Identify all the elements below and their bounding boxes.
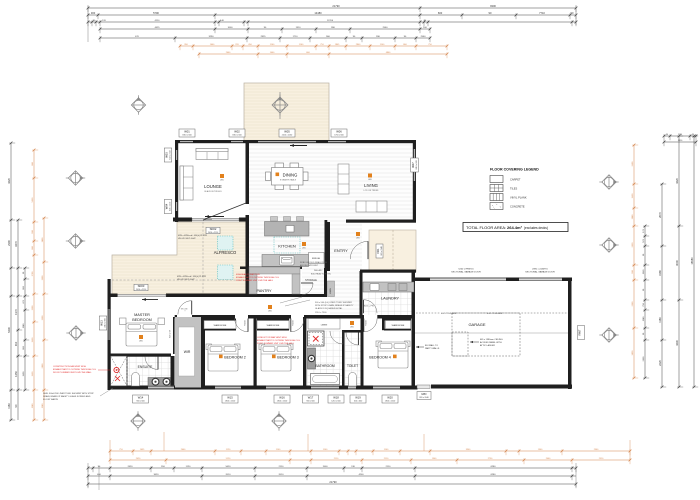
svg-text:1810 x 1500: 1810 x 1500	[277, 401, 287, 403]
svg-text:1500: 1500	[323, 466, 329, 468]
svg-text:4070 TRUSSES: 4070 TRUSSES	[441, 313, 457, 315]
svg-text:CONSTRUCTION FAN VENT MOH: CONSTRUCTION FAN VENT MOH	[53, 365, 86, 368]
svg-text:ACCESS PANEL WITH: ACCESS PANEL WITH	[480, 341, 502, 344]
svg-text:21790: 21790	[329, 480, 337, 484]
svg-text:610 x 1210: 610 x 1210	[170, 202, 172, 211]
svg-text:BULKHEAD TO HOTEL: BULKHEAD TO HOTEL	[311, 273, 331, 276]
svg-text:900 x 900 (LG) LINED TILED SHO: 900 x 900 (LG) LINED TILED SHOWER	[315, 302, 352, 304]
svg-text:WARDROBE: WARDROBE	[267, 324, 280, 327]
svg-text:W01: W01	[184, 130, 190, 134]
svg-text:B/U WALL TO: B/U WALL TO	[425, 344, 438, 347]
svg-text:LED: LED	[350, 327, 354, 329]
svg-text:2110: 2110	[279, 466, 284, 468]
svg-text:2410 x 900: 2410 x 900	[105, 318, 107, 327]
svg-text:CONCRETE: CONCRETE	[510, 205, 525, 209]
svg-text:1000: 1000	[228, 27, 234, 29]
svg-text:900 x 600: 900 x 600	[136, 401, 144, 403]
svg-text:1450: 1450	[14, 371, 18, 377]
svg-text:VINYL PLANK: VINYL PLANK	[510, 196, 527, 200]
svg-text:7/8x68: 7/8x68	[245, 320, 247, 326]
svg-text:FLOOR WASTE: FLOOR WASTE	[43, 398, 59, 401]
svg-text:1710: 1710	[293, 36, 299, 38]
svg-text:665 x 1380mm CEILING: 665 x 1380mm CEILING	[480, 339, 503, 341]
svg-text:2010: 2010	[226, 474, 232, 476]
svg-text:W02: W02	[234, 130, 240, 134]
svg-text:4200: 4200	[359, 474, 365, 476]
svg-text:ENSUITE: ENSUITE	[138, 365, 153, 369]
svg-text:DRAIN, BRASS IP SAFETY GLASS S: DRAIN, BRASS IP SAFETY GLASS SCREED AND	[43, 395, 91, 398]
svg-text:4PB x 4PB/cob / 450(h) PLNTR: 4PB x 4PB/cob / 450(h) PLNTR	[177, 276, 207, 278]
svg-text:1370: 1370	[14, 309, 18, 315]
svg-text:CONDUCTOR FAN VENT MOH: CONDUCTOR FAN VENT MOH	[257, 336, 287, 339]
svg-text:920 x 2340: 920 x 2340	[381, 246, 383, 255]
svg-text:STORAGE: STORAGE	[305, 279, 317, 282]
svg-text:5200 x HRM 16: 5200 x HRM 16	[458, 269, 474, 271]
svg-text:BEDROOM: BEDROOM	[132, 318, 152, 322]
svg-text:600: 600	[438, 11, 443, 15]
svg-text:W20: W20	[387, 396, 393, 400]
svg-text:8 SEATER TABLE: 8 SEATER TABLE	[280, 179, 297, 182]
svg-text:2560: 2560	[383, 27, 389, 29]
svg-text:SECTIONAL GARAGE DOOR: SECTIONAL GARAGE DOOR	[451, 271, 481, 274]
svg-text:610 x 2110: 610 x 2110	[170, 150, 172, 159]
svg-text:1810 x 600: 1810 x 600	[232, 135, 241, 137]
svg-text:MASTER: MASTER	[134, 313, 150, 317]
svg-text:POINT SUMMER UNIT LIVE THE HAL: POINT SUMMER UNIT LIVE THE HALL	[236, 279, 274, 282]
svg-text:2220: 2220	[658, 360, 662, 366]
svg-text:ROBO L/MOULD SMALL ROBE: ROBO L/MOULD SMALL ROBE	[300, 261, 328, 264]
svg-text:5620: 5620	[226, 466, 232, 468]
svg-text:W16: W16	[279, 396, 285, 400]
svg-text:2410 x 2110: 2410 x 2110	[136, 289, 146, 291]
svg-text:2390: 2390	[7, 240, 11, 246]
svg-text:610 x 600: 610 x 600	[354, 401, 362, 403]
svg-text:BEDROOM 3: BEDROOM 3	[277, 356, 299, 360]
svg-text:LED: LED	[139, 341, 143, 343]
svg-text:TILES: TILES	[510, 187, 517, 191]
svg-text:W17: W17	[308, 396, 314, 400]
svg-text:1810 x 600: 1810 x 600	[182, 135, 191, 137]
svg-text:W04: W04	[165, 203, 169, 209]
svg-text:LED: LED	[268, 311, 272, 313]
svg-text:7/8 x 68: 7/8 x 68	[181, 309, 188, 311]
svg-text:2410 x 600: 2410 x 600	[416, 160, 418, 169]
svg-text:W14: W14	[138, 396, 144, 400]
svg-text:WITH STRIP DRAIN, BRASS IP SAF: WITH STRIP DRAIN, BRASS IP SAFETY	[315, 304, 354, 307]
svg-text:2110: 2110	[386, 466, 391, 468]
svg-text:LCD ON TRESS: LCD ON TRESS	[364, 190, 379, 192]
svg-text:VELUX SKYLIGHT: VELUX SKYLIGHT	[177, 279, 195, 281]
svg-text:LED: LED	[368, 179, 372, 181]
svg-text:LINEN: LINEN	[330, 287, 332, 293]
svg-text:ROOF PLUMBER VENT LIVE THE WAL: ROOF PLUMBER VENT LIVE THE WALL	[53, 371, 92, 374]
svg-text:4PB x 4PB/cob / 450(h) PLNTR: 4PB x 4PB/cob / 450(h) PLNTR	[178, 235, 208, 237]
svg-text:3180: 3180	[658, 270, 662, 276]
svg-text:300: 300	[91, 11, 96, 15]
svg-text:7/8x68: 7/8x68	[366, 320, 368, 326]
svg-text:GLASS IS SQUARE/DIGITAL: GLASS IS SQUARE/DIGITAL	[315, 307, 343, 310]
svg-text:1510 x 7900: 1510 x 7900	[315, 312, 327, 314]
svg-text:3470: 3470	[14, 241, 18, 247]
svg-text:PARTY WALLS: PARTY WALLS	[425, 347, 440, 350]
svg-text:LED: LED	[356, 238, 360, 240]
svg-text:9300: 9300	[490, 4, 496, 8]
svg-text:LED: LED	[220, 180, 224, 182]
svg-text:WARDROBE: WARDROBE	[214, 324, 227, 327]
svg-text:4430: 4430	[675, 340, 679, 346]
svg-text:820 x 68: 820 x 68	[170, 329, 172, 338]
svg-text:WIR: WIR	[184, 350, 191, 354]
svg-text:820 x 2040: 820 x 2040	[419, 397, 428, 399]
svg-text:W13: W13	[100, 320, 104, 326]
svg-text:1160: 1160	[7, 403, 11, 409]
svg-text:4425: 4425	[155, 27, 161, 29]
svg-text:1810 x 1500: 1810 x 1500	[385, 401, 395, 403]
svg-text:W05: W05	[284, 130, 290, 134]
svg-text:CARPET: CARPET	[510, 178, 521, 182]
svg-text:BATHROOM: BATHROOM	[315, 364, 335, 368]
svg-text:BLACKOUT/RUGS: BLACKOUT/RUGS	[204, 190, 222, 193]
svg-text:4070 TRUSSES: 4070 TRUSSES	[487, 313, 503, 315]
svg-text:LINEN: LINEN	[321, 325, 328, 327]
svg-text:6280: 6280	[491, 474, 497, 476]
svg-text:1750 x 600: 1750 x 600	[334, 135, 343, 137]
svg-text:4420: 4420	[7, 178, 11, 184]
svg-text:264.4m²: 264.4m²	[507, 225, 523, 230]
svg-text:2410 x 2160: 2410 x 2160	[282, 135, 292, 137]
svg-text:SHSL 900x1250 LINER TILED SHOW: SHSL 900x1250 LINER TILED SHOWER WITH ST…	[43, 393, 94, 395]
svg-text:FRIDGE: FRIDGE	[312, 258, 321, 260]
svg-text:W19: W19	[355, 396, 361, 400]
svg-text:4420: 4420	[675, 178, 679, 184]
svg-text:21790: 21790	[332, 4, 340, 8]
svg-text:5430: 5430	[7, 327, 11, 333]
svg-text:KINGSEAL(D) WET/TILN: KINGSEAL(D) WET/TILN	[236, 273, 260, 276]
svg-text:SD02: SD02	[210, 227, 217, 231]
svg-text:1310: 1310	[296, 27, 302, 29]
svg-text:1120: 1120	[186, 466, 191, 468]
svg-text:EXHAUST AIR TO OUTSIDE THROUGH: EXHAUST AIR TO OUTSIDE THROUGH CLG	[236, 276, 279, 279]
svg-text:2390 x 2440H D: 2390 x 2440H D	[532, 269, 548, 271]
svg-text:GARAGE: GARAGE	[468, 322, 485, 327]
svg-text:2420: 2420	[128, 466, 134, 468]
svg-text:W03: W03	[165, 152, 169, 158]
svg-text:LIVING: LIVING	[364, 183, 378, 188]
svg-text:3290: 3290	[209, 36, 215, 38]
svg-text:DINING: DINING	[283, 173, 298, 178]
svg-text:2560: 2560	[421, 36, 427, 38]
svg-text:W06: W06	[336, 130, 342, 134]
svg-text:LAUNDRY: LAUNDRY	[381, 297, 400, 301]
svg-text:D01: D01	[376, 248, 380, 253]
svg-text:M/D: M/D	[422, 392, 427, 396]
svg-text:5790: 5790	[153, 11, 159, 15]
svg-text:7710: 7710	[539, 11, 545, 15]
svg-text:EXHAUST AIR TO OUTSIDE THROUGH: EXHAUST AIR TO OUTSIDE THROUGH CLG	[257, 339, 300, 342]
svg-text:SECTIONAL GARAGE DOOR: SECTIONAL GARAGE DOOR	[525, 271, 555, 274]
svg-text:TOILET: TOILET	[347, 364, 358, 368]
svg-text:14480: 14480	[314, 11, 322, 15]
svg-text:1810 x 1500: 1810 x 1500	[225, 401, 235, 403]
svg-text:3620: 3620	[154, 474, 160, 476]
svg-text:2925: 2925	[261, 36, 267, 38]
svg-text:(excludes decks): (excludes decks)	[524, 226, 548, 230]
svg-text:6280: 6280	[491, 466, 497, 468]
svg-text:ATTIC LADDER: ATTIC LADDER	[480, 344, 495, 347]
svg-text:1180: 1180	[658, 317, 662, 323]
svg-text:ALFRESCO: ALFRESCO	[214, 250, 237, 255]
svg-text:2010: 2010	[279, 474, 285, 476]
svg-text:PANTRY: PANTRY	[256, 289, 272, 293]
svg-text:820s + FW: 820s + FW	[364, 306, 374, 308]
svg-text:WEL ARC: WEL ARC	[314, 269, 323, 272]
svg-text:LOUNGE: LOUNGE	[204, 184, 222, 189]
svg-text:AFLUSH W/POCKET: AFLUSH W/POCKET	[300, 264, 319, 267]
svg-text:LED: LED	[302, 248, 306, 250]
svg-text:900 x 600: 900 x 600	[306, 401, 314, 403]
svg-text:TOTAL FLOOR AREA:: TOTAL FLOOR AREA:	[466, 225, 506, 230]
svg-text:3000: 3000	[675, 260, 679, 266]
svg-text:EXHAUST AIR TO OUTSIDE THROUGH: EXHAUST AIR TO OUTSIDE THROUGH CLG	[53, 368, 96, 371]
svg-text:1210 x 600: 1210 x 600	[331, 401, 340, 403]
svg-text:WARDROBE: WARDROBE	[392, 324, 405, 327]
svg-text:BEDROOM 4: BEDROOM 4	[369, 356, 391, 360]
svg-text:12700: 12700	[327, 20, 334, 22]
svg-text:BEDROOM 2: BEDROOM 2	[224, 356, 246, 360]
svg-text:ENTRY: ENTRY	[334, 248, 348, 253]
svg-text:7/8x68: 7/8x68	[293, 320, 295, 326]
svg-text:W18: W18	[333, 396, 339, 400]
svg-text:W15: W15	[227, 396, 233, 400]
svg-text:KITCHEN: KITCHEN	[278, 244, 296, 249]
svg-text:2670: 2670	[658, 212, 662, 218]
svg-text:4110: 4110	[155, 20, 160, 22]
svg-text:VELUX SKYLIGHT: VELUX SKYLIGHT	[178, 238, 196, 240]
svg-text:RWT: RWT	[578, 329, 582, 335]
svg-text:16580: 16580	[690, 257, 694, 265]
svg-text:2410 x 2110: 2410 x 2110	[208, 232, 218, 234]
svg-text:910: 910	[14, 341, 18, 346]
svg-text:W07: W07	[411, 162, 415, 168]
svg-text:FLOOR COVERING LEGEND: FLOOR COVERING LEGEND	[490, 168, 539, 172]
svg-text:SD03: SD03	[138, 284, 145, 288]
